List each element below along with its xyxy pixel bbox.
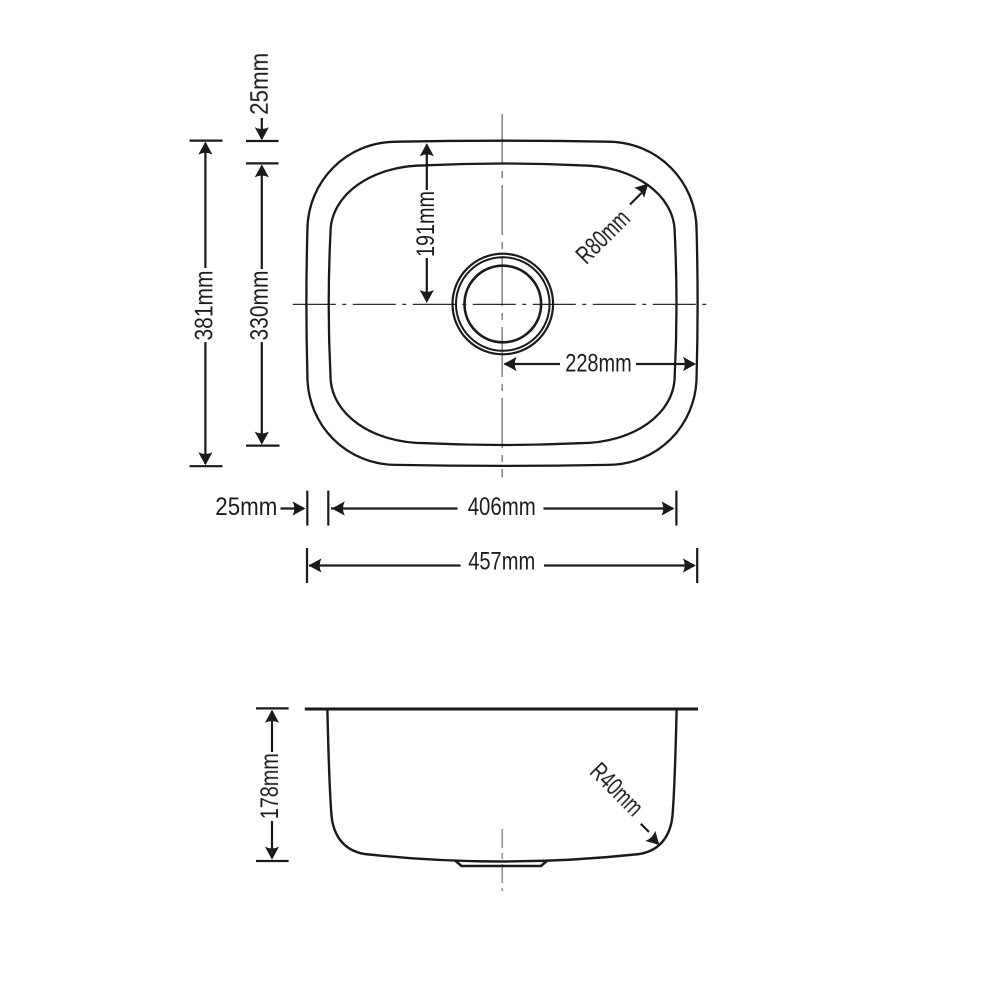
svg-text:406mm: 406mm: [468, 493, 536, 521]
svg-text:25mm: 25mm: [215, 493, 277, 521]
svg-text:381mm: 381mm: [190, 271, 218, 341]
svg-text:178mm: 178mm: [256, 753, 284, 819]
svg-text:25mm: 25mm: [246, 53, 274, 115]
svg-text:457mm: 457mm: [468, 548, 535, 576]
svg-text:228mm: 228mm: [565, 349, 632, 377]
svg-text:191mm: 191mm: [412, 191, 440, 257]
svg-text:330mm: 330mm: [246, 271, 274, 341]
